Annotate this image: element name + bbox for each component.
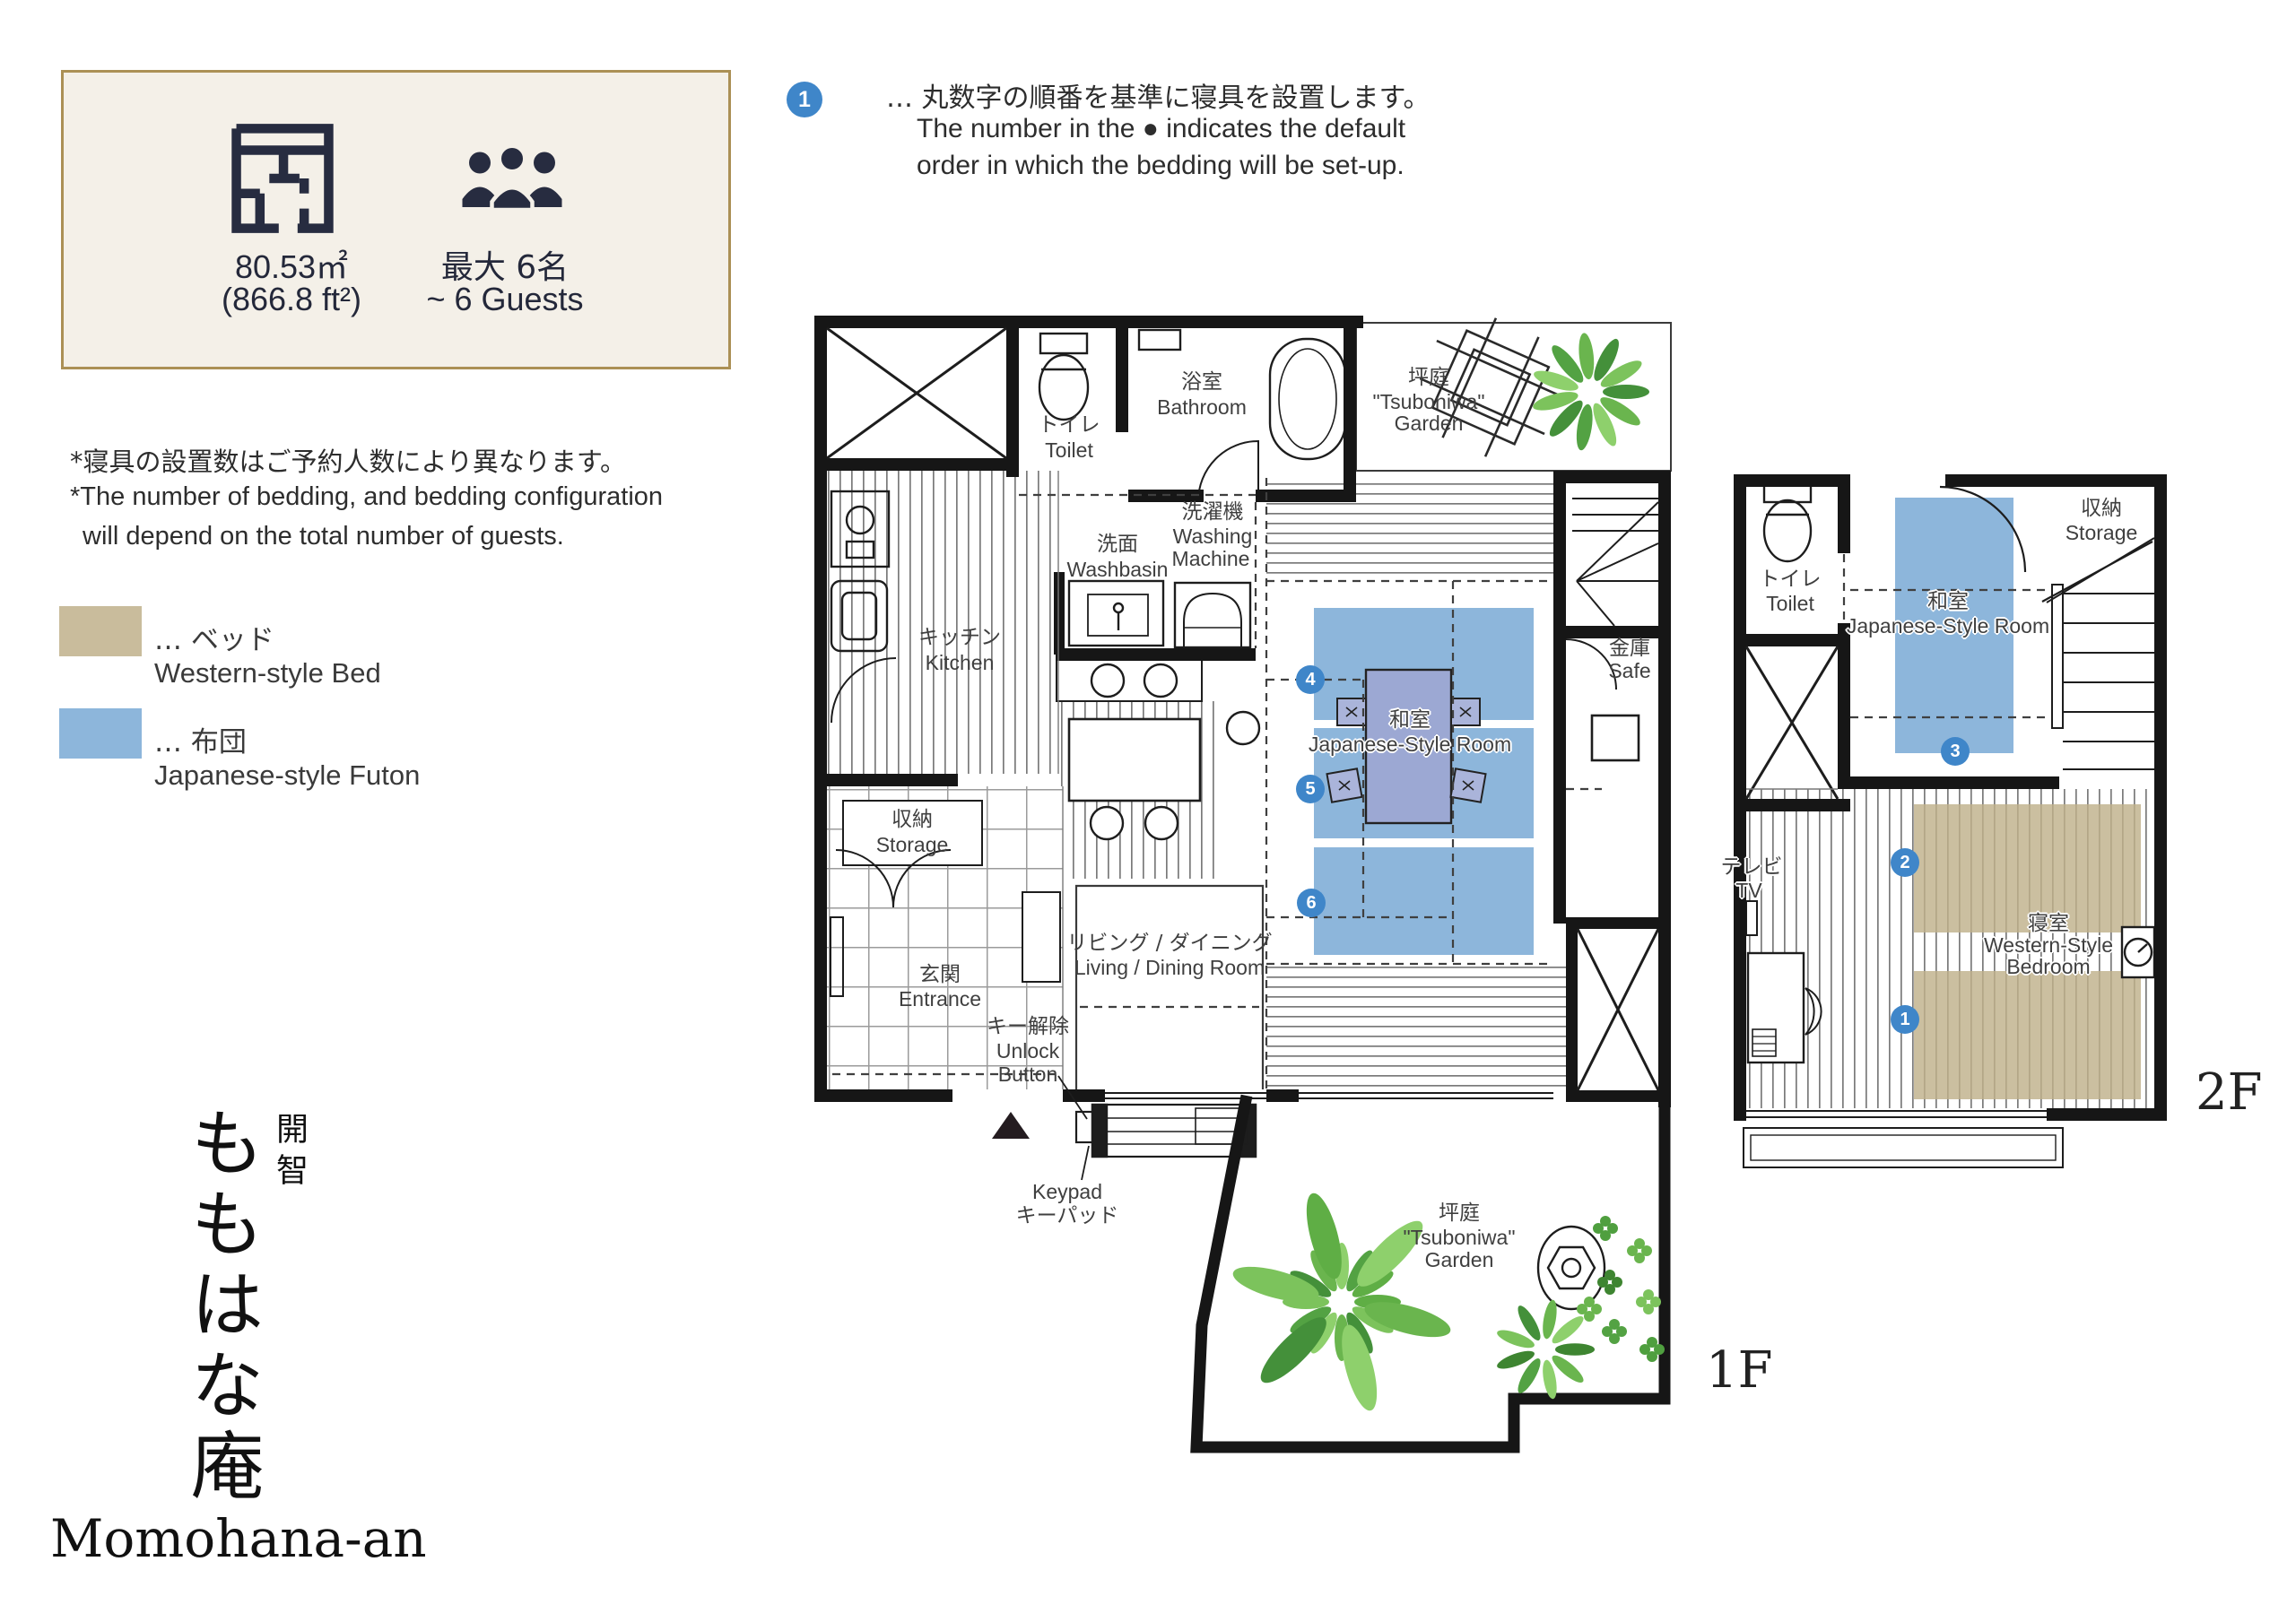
f1-fixtures (831, 299, 1671, 1309)
bed-marker-1: 1 (1891, 1005, 1919, 1034)
kitchen-counter (1057, 657, 1202, 701)
f2-storage-ja: 収納 (2081, 499, 2122, 519)
f1-kitchen-en: Kitchen (926, 653, 995, 673)
property-name-en: Momohana-an (50, 1508, 427, 1569)
living-dining-outline (1076, 886, 1263, 1089)
washing-machine-fixture (1175, 583, 1250, 647)
window-lines (1105, 1093, 1553, 1098)
f1-bathroom-ja: 浴室 (1181, 372, 1222, 393)
stairs-1f (1572, 499, 1658, 626)
shower-fixture (1139, 330, 1180, 350)
f2-bedroom-en2: Bedroom (2006, 957, 2090, 977)
hall-cabinet (1022, 892, 1060, 982)
legend-bed-swatch (59, 606, 142, 656)
f1-storage-ja: 収納 (891, 810, 933, 830)
bed-marker-2: 2 (1891, 848, 1919, 877)
desk (1748, 953, 1804, 1063)
f1-bathroom-en: Bathroom (1157, 397, 1247, 418)
entrance-arrow (992, 1112, 1030, 1139)
f1-entrance-ja: 玄関 (919, 965, 961, 985)
bed-1 (1914, 971, 2141, 1099)
f1-garden-bottom-ja: 坪庭 (1439, 1203, 1480, 1224)
guests-icon (458, 144, 566, 216)
garden-spiky-plant (1495, 1299, 1595, 1401)
dining-chair (1091, 807, 1123, 839)
legend-bed-en: Western-style Bed (154, 657, 381, 690)
f1-entrance-en: Entrance (899, 989, 981, 1010)
f1-washbasin-ja: 洗面 (1097, 534, 1138, 555)
f1-washbasin-en: Washbasin (1067, 559, 1169, 580)
f1-keypad-ja: キーパッド (1016, 1206, 1119, 1227)
f1-unlock-en2: Button (998, 1064, 1058, 1085)
disclaimer-en1: *The number of bedding, and bedding conf… (70, 482, 663, 512)
f1-washitsu-en: Japanese-Style Room (1309, 734, 1511, 755)
f1-safe-en: Safe (1608, 661, 1650, 681)
f1-floor-tag: 1F (1706, 1341, 1772, 1400)
disclaimer-ja: *寝具の設置数はご予約人数により異なります。 (70, 441, 626, 479)
futon-marker-6: 6 (1297, 889, 1326, 917)
stairs-2f (2047, 538, 2154, 769)
f1-toilet-ja: トイレ (1039, 415, 1100, 436)
legend-bed-ja: … ベッド (154, 617, 274, 657)
futon-marker-3: 3 (1941, 737, 1970, 766)
capacity-info-box: 80.53㎡ (866.8 ft²) 最大 6名 ~ 6 Guests (61, 70, 731, 369)
area-ft2: (866.8 ft²) (222, 281, 361, 318)
property-name-ja: ももはな庵 (167, 1105, 274, 1508)
tsukubai-basin (1538, 1227, 1605, 1309)
note-number-badge: 1 (787, 82, 822, 117)
f1-washing-en1: Washing (1173, 526, 1253, 547)
kitchen-floor (827, 471, 1058, 774)
f2-bedroom-ja: 寝室 (2028, 914, 2069, 934)
dining-chair (1145, 807, 1178, 839)
f2-washitsu-en: Japanese-Style Room (1847, 616, 2049, 637)
toilet-fixture (1039, 334, 1088, 420)
f1-washitsu-ja: 和室 (1389, 710, 1431, 731)
dining-chair (1227, 712, 1259, 744)
f2-floor-tag: 2F (2196, 1063, 2262, 1122)
balcony-window (1746, 1111, 2047, 1117)
f1-living-ja: リビング / ダイニング (1066, 933, 1272, 954)
keypad-leader (1082, 1146, 1089, 1180)
f1-bedding (1314, 608, 1534, 955)
f2-washitsu-ja: 和室 (1927, 592, 1969, 612)
note-en2: order in which the bedding will be set-u… (917, 151, 1405, 181)
dining-chair (1144, 664, 1177, 697)
f1-garden-top-ja: 坪庭 (1408, 368, 1449, 388)
safe-box (1592, 716, 1639, 760)
f2-toilet-ja: トイレ (1760, 569, 1822, 590)
f1-unlock-ja: キー解除 (987, 1017, 1069, 1037)
f1-washing-ja: 洗濯機 (1182, 502, 1244, 523)
void-x-2f (1746, 646, 1838, 799)
legend-futon-swatch (59, 708, 142, 759)
f1-kitchen-ja: キッチン (918, 628, 1001, 648)
f1-garden-bottom-en1: "Tsuboniwa" (1403, 1227, 1515, 1248)
floorplan-page: { "info_box": { "area_m2": "80.53㎡", "ar… (0, 0, 2296, 1622)
f1-storage-en: Storage (876, 835, 949, 855)
dining-table (1069, 719, 1200, 801)
legend-futon-ja: … 布団 (154, 719, 247, 759)
floorplan-icon (230, 122, 335, 235)
f1-garden-top-en1: "Tsuboniwa" (1372, 392, 1484, 412)
note-en1: The number in the ● indicates the defaul… (917, 114, 1405, 144)
futon-marker-4: 4 (1296, 665, 1325, 694)
futon-6 (1314, 847, 1534, 955)
nightstand-clock (2122, 927, 2154, 977)
bathtub (1270, 339, 1345, 459)
dining-chair (1091, 664, 1124, 697)
f2-tv-en: TV (1735, 880, 1761, 901)
f1-washing-en2: Machine (1172, 549, 1250, 569)
f1-toilet-en: Toilet (1045, 440, 1093, 461)
f1-safe-ja: 金庫 (1609, 638, 1650, 659)
void-x-topleft (827, 328, 1006, 458)
disclaimer-en2: will depend on the total number of guest… (83, 522, 564, 551)
void-x-bottomright (1578, 929, 1658, 1090)
legend-futon-en: Japanese-style Futon (154, 759, 420, 792)
garden-flowers (1577, 1216, 1665, 1362)
capacity-en: ~ 6 Guests (426, 281, 583, 318)
f1-living-en: Living / Dining Room (1074, 958, 1265, 978)
f2-tv-ja: テレビ (1721, 857, 1783, 878)
toilet-fixture-2f (1764, 484, 1811, 561)
f1-garden-top-en2: Garden (1395, 413, 1464, 434)
f1-garden-bottom-en2: Garden (1425, 1250, 1494, 1271)
f2-storage-en: Storage (2066, 523, 2138, 543)
garden-shrub (1230, 1190, 1454, 1414)
f1-keypad-en: Keypad (1032, 1182, 1102, 1202)
f1-unlock-en1: Unlock (996, 1041, 1059, 1062)
washbasin-fixture (1069, 581, 1163, 646)
tv-set (1746, 901, 1757, 935)
balcony (1744, 1128, 2063, 1167)
bathroom-door (1198, 441, 1258, 501)
engawa-bottom-floor (1266, 964, 1566, 1089)
note-ja: … 丸数字の順番を基準に寝具を設置します。 (886, 75, 1431, 115)
storage-diagonal (2042, 542, 2152, 602)
f2-toilet-en: Toilet (1766, 594, 1814, 614)
futon-marker-5: 5 (1296, 775, 1325, 803)
f2-bedroom-en1: Western-Style (1984, 935, 2113, 956)
